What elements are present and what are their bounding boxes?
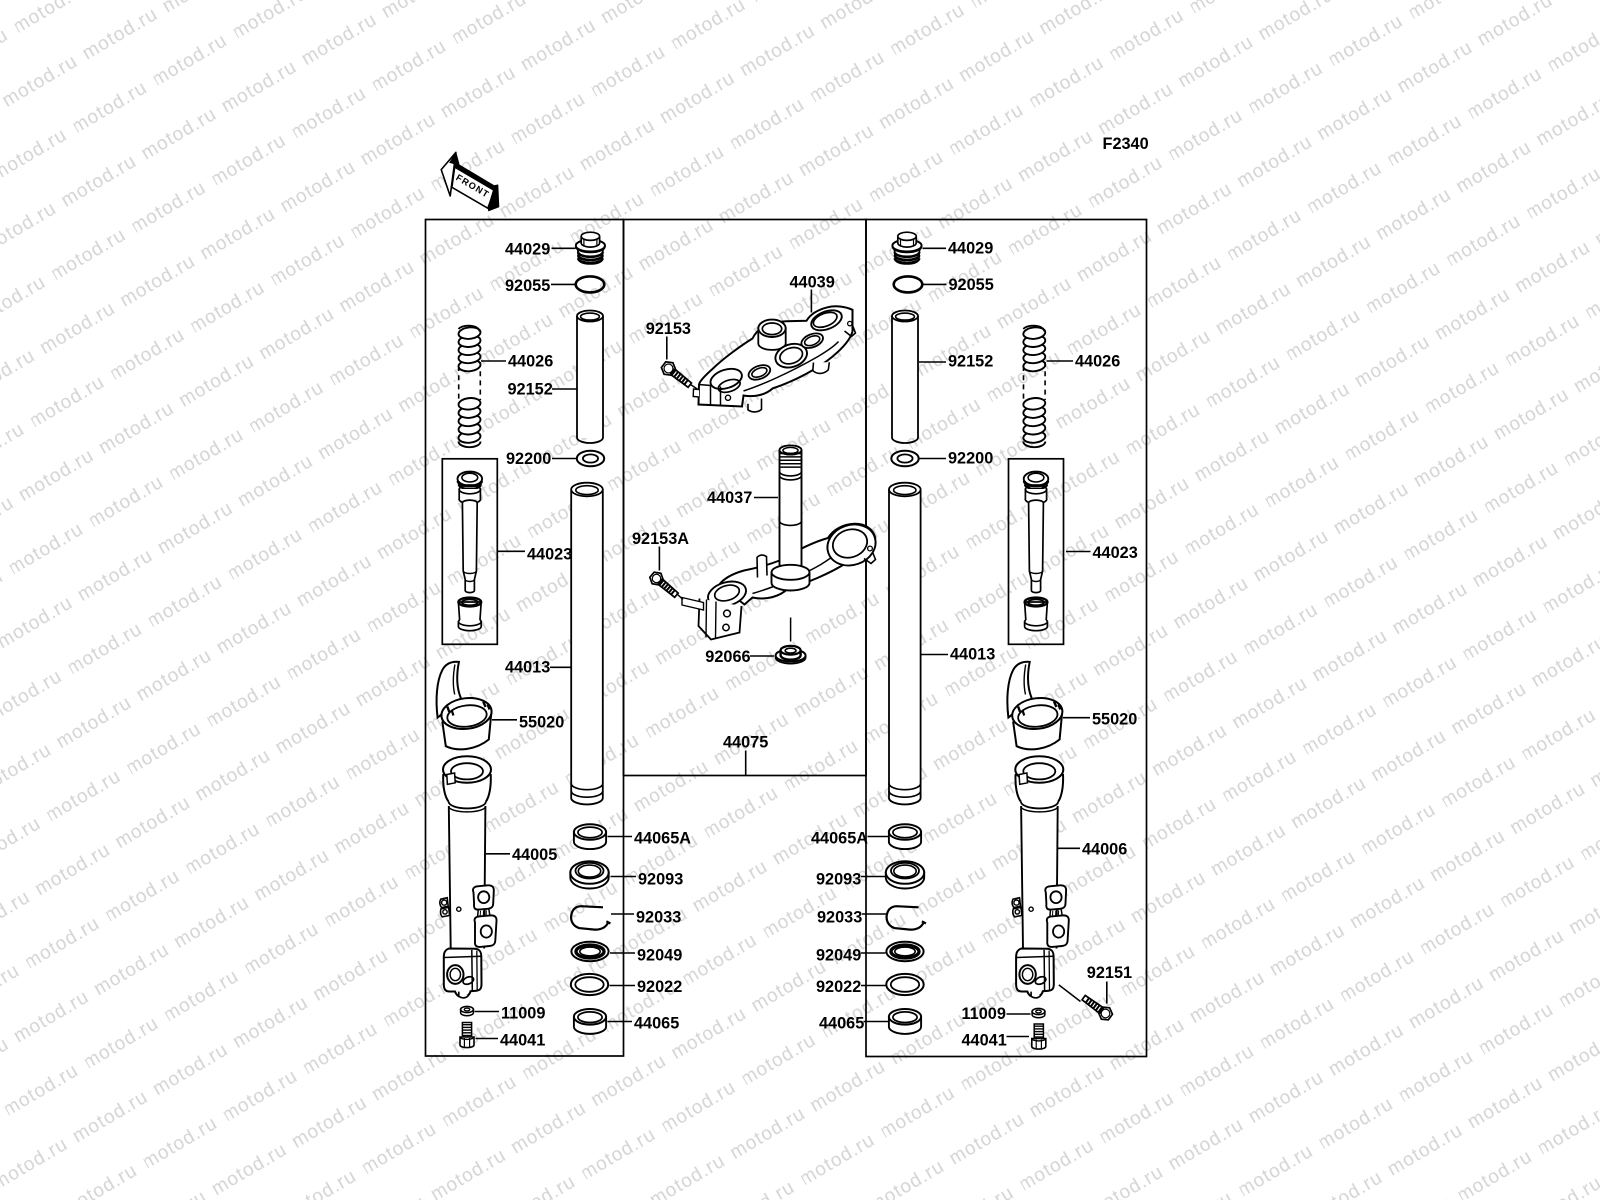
svg-text:11009: 11009 xyxy=(501,1005,545,1023)
svg-text:44013: 44013 xyxy=(505,659,550,677)
svg-text:44029: 44029 xyxy=(948,240,993,258)
svg-text:F2340: F2340 xyxy=(1103,135,1149,153)
svg-text:44039: 44039 xyxy=(790,274,835,292)
svg-text:92151: 92151 xyxy=(1087,964,1132,982)
svg-text:44065: 44065 xyxy=(819,1015,864,1033)
svg-text:92049: 92049 xyxy=(637,947,682,965)
svg-text:92153: 92153 xyxy=(646,320,691,338)
svg-text:44065A: 44065A xyxy=(634,830,691,848)
svg-text:44065A: 44065A xyxy=(811,830,868,848)
svg-text:92049: 92049 xyxy=(816,947,861,965)
svg-text:44075: 44075 xyxy=(723,734,768,752)
svg-text:44023: 44023 xyxy=(1093,544,1138,562)
svg-text:44023: 44023 xyxy=(527,546,572,564)
svg-text:92066: 92066 xyxy=(705,648,750,666)
svg-text:44065: 44065 xyxy=(634,1015,679,1033)
svg-text:92152: 92152 xyxy=(948,353,993,371)
svg-text:11009: 11009 xyxy=(962,1005,1006,1023)
svg-text:44006: 44006 xyxy=(1082,841,1127,859)
svg-text:44005: 44005 xyxy=(512,846,557,864)
svg-text:44026: 44026 xyxy=(508,353,553,371)
svg-text:44029: 44029 xyxy=(505,241,550,259)
svg-text:92093: 92093 xyxy=(816,871,861,889)
svg-text:92152: 92152 xyxy=(508,381,553,399)
svg-text:92200: 92200 xyxy=(948,450,993,468)
svg-text:92022: 92022 xyxy=(637,978,682,996)
svg-text:44026: 44026 xyxy=(1075,353,1120,371)
svg-text:55020: 55020 xyxy=(1092,711,1137,729)
svg-text:92033: 92033 xyxy=(817,909,862,927)
svg-text:92055: 92055 xyxy=(949,276,994,294)
svg-text:92055: 92055 xyxy=(505,277,550,295)
svg-text:44013: 44013 xyxy=(950,646,995,664)
svg-text:92033: 92033 xyxy=(636,909,681,927)
svg-text:44041: 44041 xyxy=(962,1032,1007,1050)
svg-text:92093: 92093 xyxy=(638,871,683,889)
svg-text:55020: 55020 xyxy=(519,714,564,732)
svg-text:92153A: 92153A xyxy=(632,530,689,548)
svg-text:92200: 92200 xyxy=(506,450,551,468)
svg-text:44041: 44041 xyxy=(500,1032,545,1050)
svg-text:92022: 92022 xyxy=(816,978,861,996)
svg-text:44037: 44037 xyxy=(707,489,752,507)
